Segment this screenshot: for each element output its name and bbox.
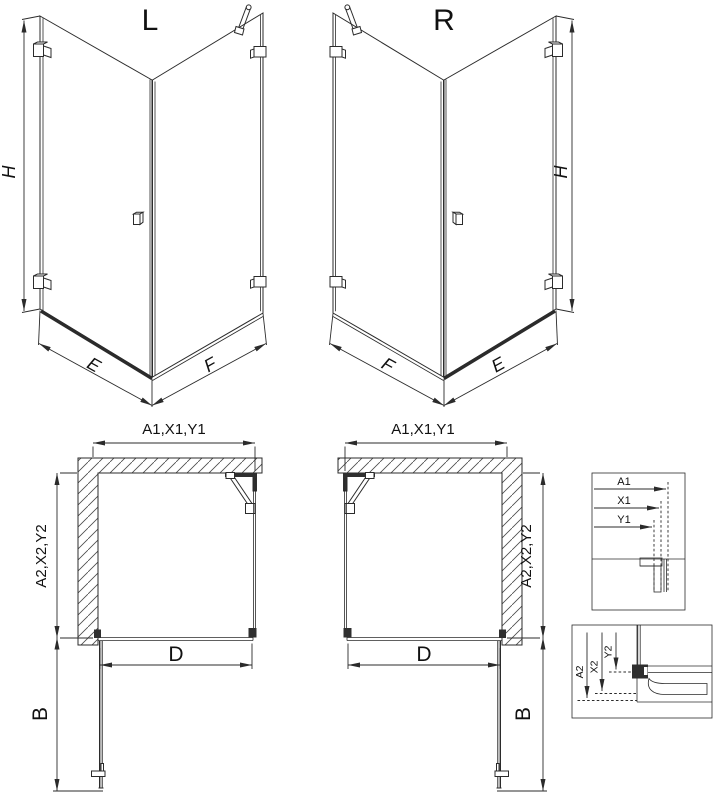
iso-right-label: R (433, 4, 455, 37)
plan-left-entry-label: D (168, 643, 183, 666)
iso-right-front-label: E (488, 353, 509, 377)
iso-view-left: L H E F (0, 4, 267, 407)
iso-view-right: R H F E (330, 4, 575, 407)
detail-y1-label: Y1 (617, 514, 630, 526)
plan-right-entry-label: D (416, 643, 431, 666)
detail-y2-label: Y2 (603, 645, 615, 658)
iso-right-height-label: H (551, 165, 571, 179)
plan-view-left: A1,X1,Y1 A2,X2,Y2 D B (29, 421, 262, 791)
iso-left-height-label: H (0, 165, 19, 179)
iso-left-label: L (142, 4, 159, 37)
iso-left-front-label: E (84, 353, 105, 377)
detail-x2-label: X2 (589, 660, 601, 673)
technical-drawing: L H E F R H F E A1,X1,Y1 A2,X2,Y2 D B A1… (0, 0, 720, 800)
detail-x1-label: X1 (617, 495, 630, 507)
plan-right-width-label: A1,X1,Y1 (391, 421, 454, 438)
wall-hatch (78, 458, 262, 645)
detail-a1-label: A1 (617, 476, 630, 488)
wall-profile-section (640, 558, 667, 592)
shower-enclosure-diagram: L H E F R H F E A1,X1,Y1 A2,X2,Y2 D B A1… (0, 0, 720, 800)
iso-right-side-label: F (378, 353, 398, 376)
plan-left-door-label: B (29, 707, 52, 721)
plan-view-right: A1,X1,Y1 A2,X2,Y2 D B (338, 421, 547, 791)
wall-hatch (338, 458, 522, 645)
threshold-section (632, 665, 712, 695)
plan-right-door-label: B (512, 707, 535, 721)
detail-box-threshold: A2 X2 Y2 (572, 625, 712, 718)
detail-a2-label: A2 (574, 665, 586, 678)
plan-left-width-label: A1,X1,Y1 (142, 421, 205, 438)
plan-right-depth-label: A2,X2,Y2 (518, 524, 535, 587)
iso-left-side-label: F (200, 353, 220, 376)
detail-box-wall-profile: A1 X1 Y1 (592, 473, 685, 610)
plan-left-depth-label: A2,X2,Y2 (33, 524, 50, 587)
